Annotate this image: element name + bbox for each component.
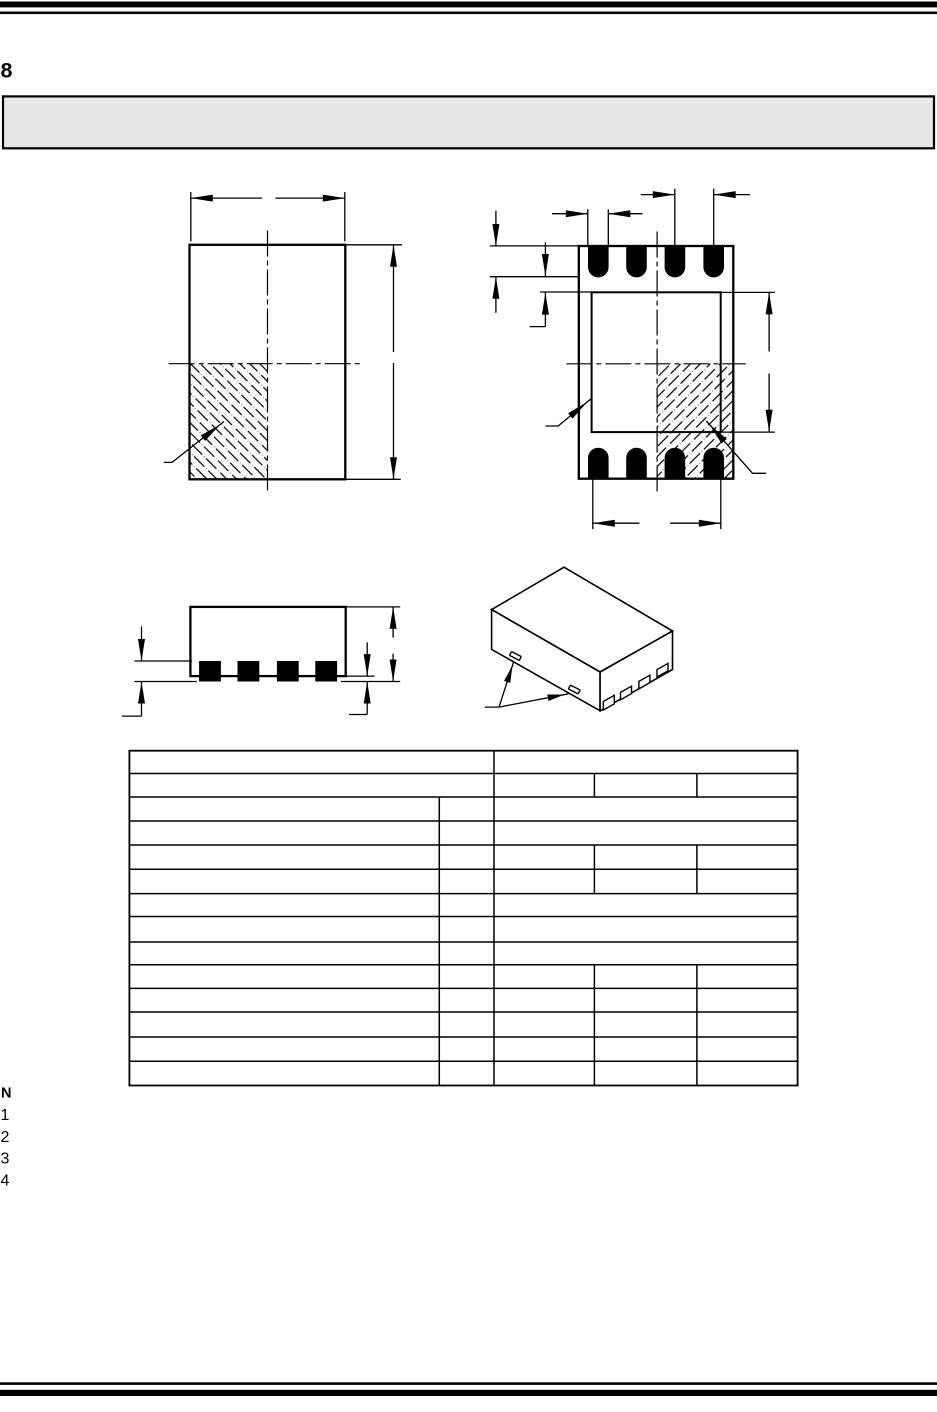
svg-text:2: 2 — [1, 1129, 10, 1146]
svg-text:4: 4 — [1, 1173, 10, 1190]
svg-text:8: 8 — [1, 59, 13, 83]
svg-text:N: N — [1, 1086, 11, 1102]
svg-text:3: 3 — [1, 1151, 10, 1168]
svg-text:1: 1 — [1, 1107, 10, 1124]
